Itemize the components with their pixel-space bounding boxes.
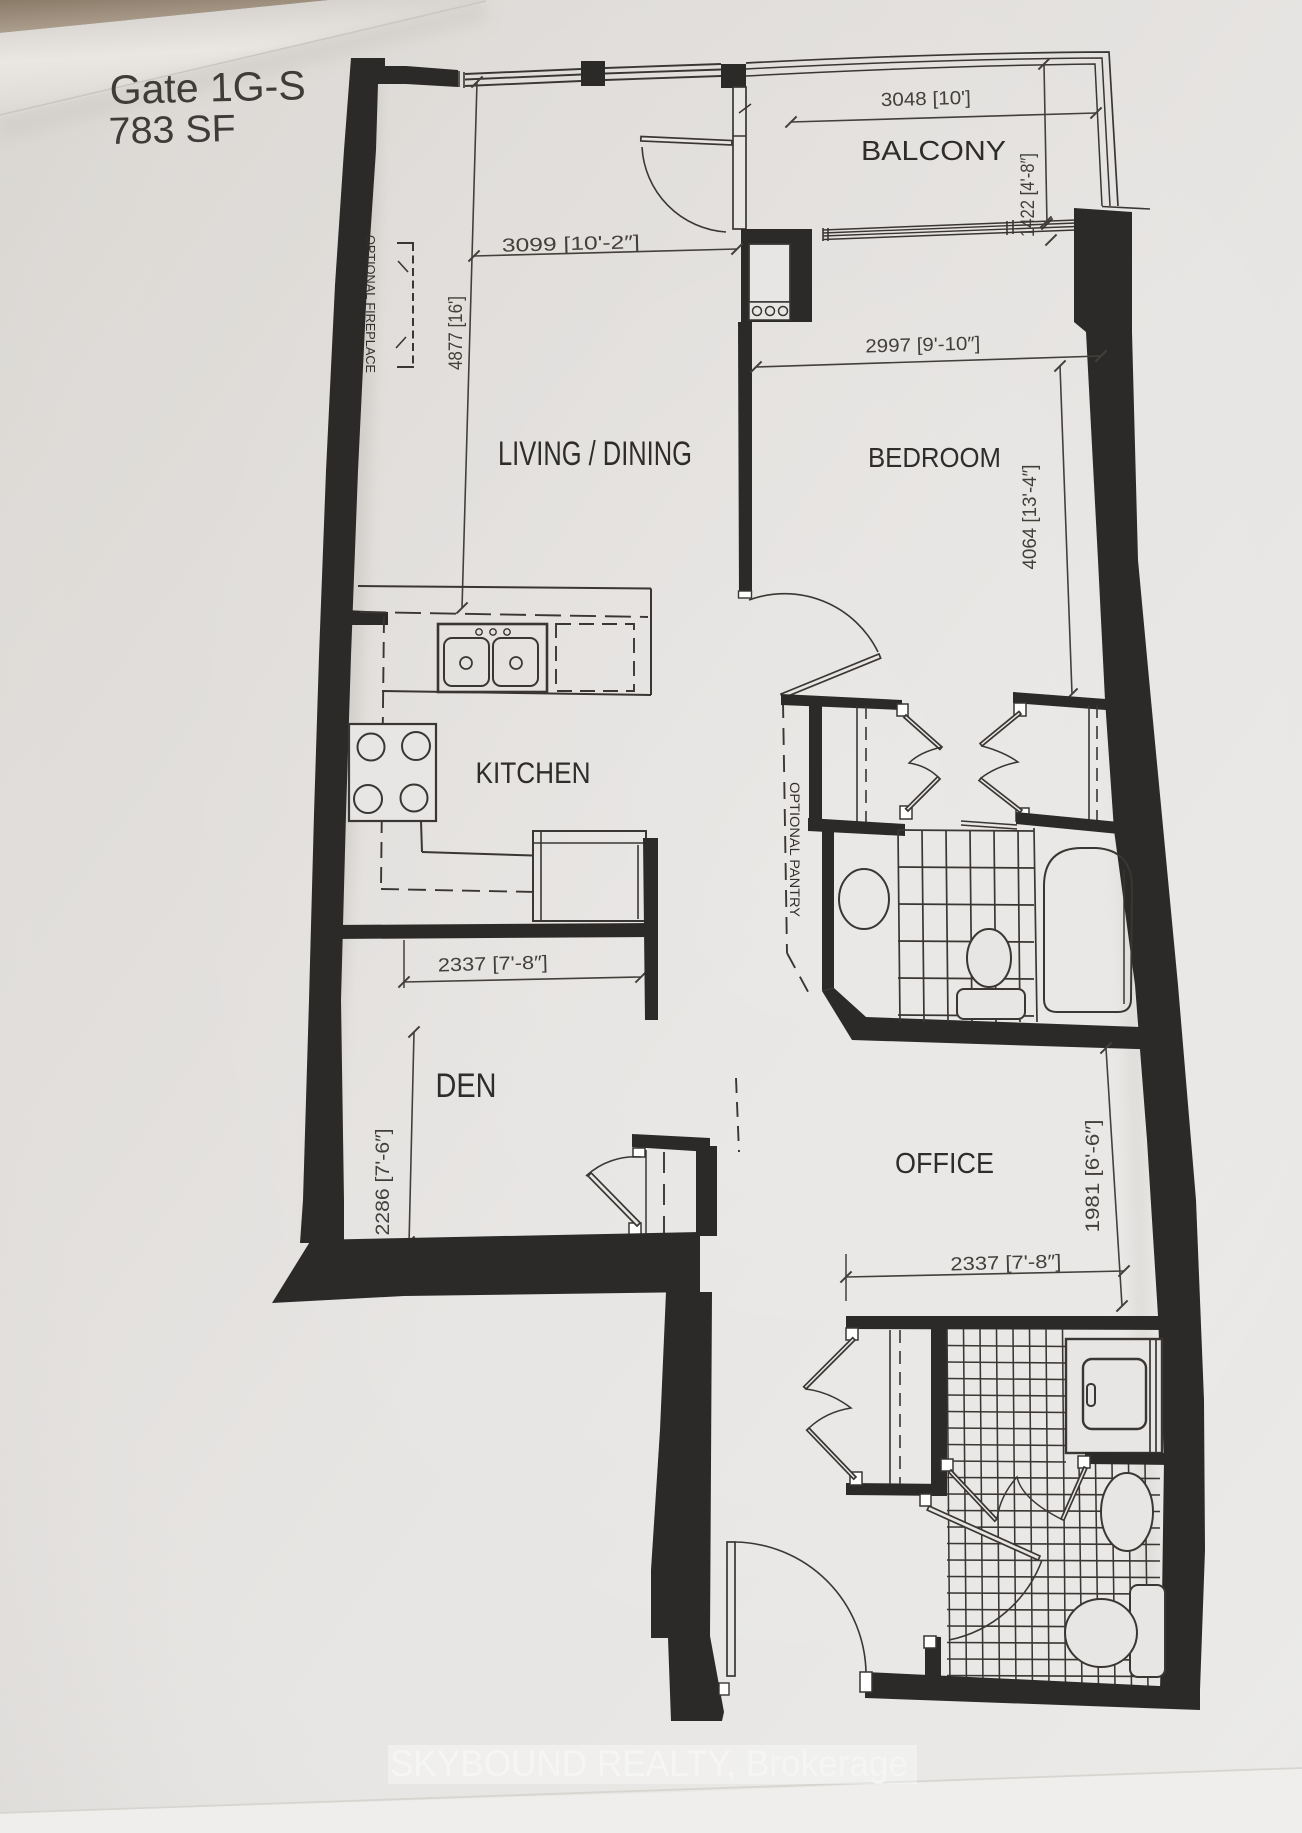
svg-text:2337 [7'-8″]: 2337 [7'-8″] bbox=[950, 1252, 1062, 1276]
svg-text:2337 [7'-8″]: 2337 [7'-8″] bbox=[438, 953, 549, 977]
svg-text:SKYBOUND REALTY, Brokerage: SKYBOUND REALTY, Brokerage bbox=[390, 1743, 908, 1784]
svg-text:KITCHEN: KITCHEN bbox=[476, 757, 591, 790]
svg-text:LIVING / DINING: LIVING / DINING bbox=[498, 435, 692, 473]
svg-text:OFFICE: OFFICE bbox=[895, 1148, 994, 1180]
svg-text:3099 [10'-2″]: 3099 [10'-2″] bbox=[502, 232, 641, 257]
svg-text:2286 [7'-6″]: 2286 [7'-6″] bbox=[373, 1129, 394, 1236]
svg-text:OPTIONAL PANTRY: OPTIONAL PANTRY bbox=[787, 782, 802, 917]
svg-text:2997 [9'-10″]: 2997 [9'-10″] bbox=[865, 334, 981, 358]
svg-text:4064 [13'-4″]: 4064 [13'-4″] bbox=[1020, 465, 1041, 570]
svg-text:OPTIONAL FIREPLACE: OPTIONAL FIREPLACE bbox=[363, 235, 378, 373]
svg-text:1981 [6'-6″]: 1981 [6'-6″] bbox=[1083, 1120, 1104, 1233]
svg-text:783 SF: 783 SF bbox=[108, 108, 236, 153]
svg-text:DEN: DEN bbox=[436, 1067, 497, 1105]
svg-text:Gate 1G-S: Gate 1G-S bbox=[109, 62, 306, 113]
svg-text:3048 [10']: 3048 [10'] bbox=[881, 88, 972, 111]
svg-text:BEDROOM: BEDROOM bbox=[868, 442, 1001, 473]
svg-text:4877 [16']: 4877 [16'] bbox=[446, 296, 467, 370]
svg-text:BALCONY: BALCONY bbox=[861, 135, 1006, 166]
